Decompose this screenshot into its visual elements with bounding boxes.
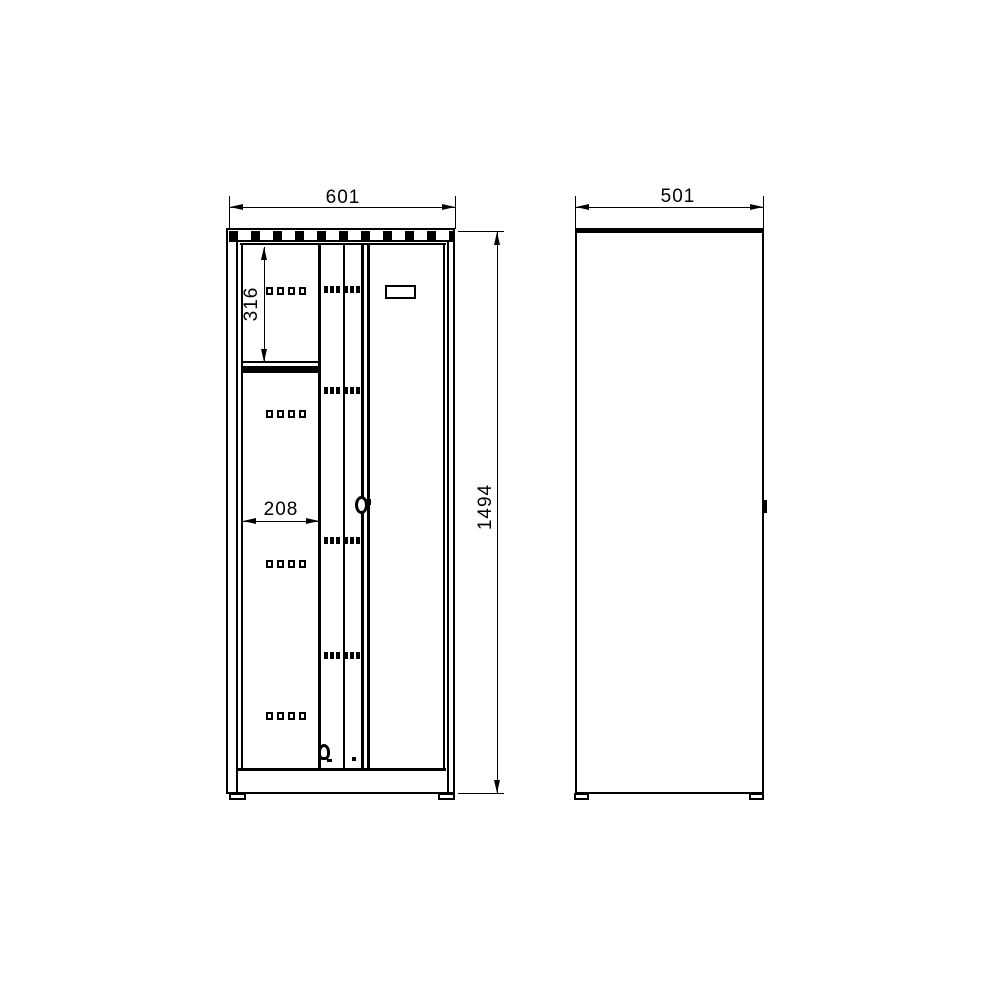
perforation-row [266,287,306,295]
label-frame [385,285,416,299]
dimension-label-compartment-height: 316 [241,287,263,322]
dimension-line [264,247,265,362]
vent-slot-strip [324,537,340,544]
dimension-label-front-width: 601 [326,187,361,209]
side-foot-right [749,793,764,800]
arrow-left-icon [243,518,256,524]
perforation-row [266,712,306,720]
top-door-bottom-edge [243,361,319,363]
left-door-hinge-edge [241,244,243,769]
perforation-row [266,410,306,418]
cylinder-lock-tab [365,499,371,505]
frame-line-left [236,242,238,793]
padlock-eye-foot [327,759,332,762]
arrow-down-icon [261,349,267,362]
center-strip-line [343,244,345,769]
arrow-left-icon [230,204,243,210]
extension-line [458,793,504,794]
vent-slot-strip [344,652,360,659]
side-foot-left [574,793,589,800]
arrow-up-icon [261,247,267,260]
technical-drawing: 601 1494 316 208 501 [0,0,1000,1000]
vent-slot-strip [324,652,340,659]
rivet-dot-icon [352,757,356,761]
shelf-divider [243,366,319,373]
arrow-left-icon [576,204,589,210]
vent-slot-strip [344,537,360,544]
dimension-label-side-depth: 501 [661,186,696,208]
front-foot-left [229,793,246,800]
arrow-right-icon [750,204,763,210]
side-lock-bump [762,500,767,513]
left-door-right-edge [318,244,321,769]
vent-slot-strip [324,387,340,394]
arrow-up-icon [494,232,500,245]
arrow-down-icon [494,780,500,793]
arrow-right-icon [442,204,455,210]
extension-line [575,196,576,228]
vent-slot-strip [344,387,360,394]
dimension-label-front-height: 1494 [475,484,497,530]
vent-slot-strip [324,286,340,293]
dimension-label-door-width: 208 [264,499,299,521]
louvre-vent-band [229,231,453,242]
dimension-line [497,232,498,793]
vent-slot-strip [344,286,360,293]
cabinet-side-outline [575,228,764,794]
extension-line [763,196,764,228]
front-foot-right [438,793,455,800]
extension-line [229,196,230,229]
padlock-eye-icon [318,744,330,760]
frame-line-right [447,242,449,793]
arrow-right-icon [306,518,319,524]
right-door-right-edge [443,244,445,769]
perforation-row [266,560,306,568]
extension-line [455,196,456,229]
door-bottom-edge [238,768,446,771]
